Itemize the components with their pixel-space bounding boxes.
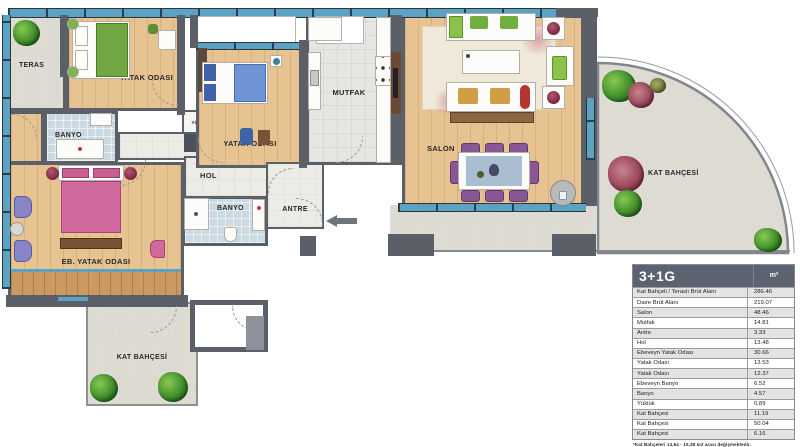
table-row: Daire Brüt Alanı219.07	[633, 297, 794, 307]
plant-icon	[158, 372, 188, 402]
area-table-header: 3+1G m²	[633, 265, 794, 287]
bed-1-blanket	[96, 23, 128, 77]
area-table-box: 3+1G m² Kat Bahçeli / Teraslı Brüt Alanı…	[632, 264, 795, 440]
window-bedroom2	[196, 42, 304, 50]
room-label: HOL	[200, 171, 217, 180]
plant-icon	[754, 228, 782, 252]
row-label: Kat Bahçeli / Teraslı Brüt Alanı	[633, 288, 747, 297]
row-label: Mutfak	[633, 318, 747, 327]
plant-icon	[614, 190, 642, 217]
row-label: Hol	[633, 339, 747, 348]
table-footnote: *Kat Bahçeleri 14,64 - 16,38 m2 arası de…	[632, 440, 795, 447]
armchair	[14, 240, 32, 262]
toilet	[224, 227, 237, 242]
row-value: 0.89	[747, 400, 794, 409]
table-row: Salon48.46	[633, 307, 794, 317]
row-value: 219.07	[747, 298, 794, 307]
decor-bowl	[547, 91, 560, 104]
stove	[375, 56, 391, 86]
window-band-left	[2, 15, 11, 289]
entry-arrow-icon	[326, 215, 357, 227]
row-value: 11.19	[747, 410, 794, 419]
plant-icon	[608, 156, 644, 192]
void-shaft-1	[196, 16, 296, 43]
window-salon-right	[586, 98, 595, 160]
table-row: Ebeveyn Banyo6.52	[633, 378, 794, 388]
row-label: Ebeveyn Yatak Odası	[633, 349, 747, 358]
row-label: Yüklük	[633, 400, 747, 409]
floor-plan: TERAS YATAK ODASI BANYO EB. YATAK ODASI …	[0, 0, 800, 447]
table-row: Ebeveyn Yatak Odası30.66	[633, 348, 794, 358]
wall-block-a	[300, 236, 316, 256]
row-label: Salon	[633, 308, 747, 317]
tv-icon	[393, 68, 398, 98]
table-title: 3+1G	[633, 265, 753, 287]
row-label: Antre	[633, 329, 747, 338]
master-balcony-strip	[11, 272, 181, 295]
console	[450, 112, 534, 123]
room-label: KAT BAHÇESİ	[648, 170, 699, 177]
shower-drain	[194, 212, 198, 216]
decor-bowl	[547, 22, 560, 35]
row-label: Ebeveyn Banyo	[633, 379, 747, 388]
table-row: Kat Bahçesi11.19	[633, 409, 794, 419]
dining-chair	[485, 190, 504, 202]
bed-2-pillow	[204, 64, 216, 81]
row-value: 48.46	[747, 308, 794, 317]
dining-chair	[509, 190, 528, 202]
armchair	[14, 196, 32, 218]
row-value: 14.81	[747, 318, 794, 327]
dresser	[60, 238, 122, 249]
table-row: Mutfak14.81	[633, 317, 794, 327]
nightstand	[46, 167, 59, 180]
row-label: Daire Brüt Alanı	[633, 298, 747, 307]
wall-void-left	[190, 15, 198, 48]
sofa-pillow-gold	[458, 88, 478, 104]
wall-bedroom2-kitchen	[299, 40, 307, 168]
table-row: Kat Bahçesi6.16	[633, 429, 794, 439]
wall-block-c	[552, 234, 596, 256]
kitchen-cabinet	[308, 17, 342, 41]
terrace-railing	[430, 250, 790, 252]
table-row: Kat Bahçeli / Teraslı Brüt Alanı286.46	[633, 287, 794, 297]
bed-2-blanket	[234, 64, 266, 102]
sofa-pillow-green	[470, 16, 488, 29]
row-value: 12.37	[747, 369, 794, 378]
wall-block-b	[388, 234, 434, 256]
sofa-throw	[449, 16, 463, 38]
row-value: 50.04	[747, 420, 794, 429]
plant-icon	[90, 374, 118, 402]
nightstand-decor	[273, 58, 280, 65]
master-pillow	[93, 168, 120, 178]
row-value: 4.57	[747, 389, 794, 398]
bathtub-faucet	[78, 147, 82, 151]
window-master-bottom	[58, 297, 88, 301]
table-row: Hol13.48	[633, 338, 794, 348]
side-table	[10, 222, 24, 236]
armchair-cushion	[552, 56, 567, 80]
room-label: KAT BAHÇESİ	[88, 354, 196, 361]
sink	[90, 113, 112, 126]
table-decor-small	[477, 171, 484, 178]
dresser-small	[258, 130, 270, 145]
row-value: 13.53	[747, 359, 794, 368]
table-row: Kat Bahçesi50.04	[633, 419, 794, 429]
coffee-table-decor	[466, 54, 470, 58]
table-row: Yüklük0.89	[633, 399, 794, 409]
wall-bedroom1-right	[177, 15, 185, 115]
arrow-shaft	[337, 218, 357, 224]
bath-vanity	[252, 199, 265, 231]
row-value: 30.66	[747, 349, 794, 358]
room-label: TERAS	[19, 62, 44, 69]
nightstand-plant	[67, 18, 79, 30]
master-window-line	[11, 269, 181, 272]
kitchen-sink	[310, 70, 319, 86]
room-label: BANYO	[217, 205, 244, 212]
bed-1-pillow	[75, 26, 88, 46]
sofa-pillow-green	[500, 16, 518, 29]
table-decor	[489, 164, 499, 176]
row-value: 3.33	[747, 329, 794, 338]
table-unit: m²	[753, 265, 794, 287]
sofa-pillow-gold	[490, 88, 510, 104]
plant-icon	[650, 78, 666, 93]
kitchen-counter-right	[376, 17, 391, 163]
room-label: BANYO	[55, 132, 82, 139]
dining-chair	[461, 190, 480, 202]
desk	[158, 30, 176, 50]
master-bed	[61, 181, 121, 233]
nightstand-plant	[67, 66, 79, 78]
master-pillow	[62, 168, 89, 178]
table-row: Yatak Odası12.37	[633, 368, 794, 378]
plant-icon	[13, 20, 40, 46]
row-value: 6.52	[747, 379, 794, 388]
area-table: 3+1G m² Kat Bahçeli / Teraslı Brüt Alanı…	[632, 264, 795, 447]
sofa-pillow-red	[520, 85, 530, 109]
arrow-head	[326, 215, 337, 227]
row-label: Kat Bahçesi	[633, 410, 747, 419]
row-label: Yatak Odası	[633, 369, 747, 378]
row-label: Kat Bahçesi	[633, 430, 747, 439]
row-value: 286.46	[747, 288, 794, 297]
chair-blue	[240, 128, 253, 145]
row-label: Yatak Odası	[633, 359, 747, 368]
row-value: 13.48	[747, 339, 794, 348]
table-row: Antre3.33	[633, 328, 794, 338]
table-row: Banyo4.57	[633, 388, 794, 398]
desk-chair	[148, 24, 158, 34]
room-label: SALON	[427, 144, 455, 153]
row-label: Kat Bahçesi	[633, 420, 747, 429]
row-label: Banyo	[633, 389, 747, 398]
round-table-decor	[559, 191, 567, 200]
row-value: 6.16	[747, 430, 794, 439]
table-row: Yatak Odası13.53	[633, 358, 794, 368]
bed-2-pillow	[204, 84, 216, 101]
vanity-faucet	[257, 206, 261, 210]
coffee-table	[462, 50, 520, 74]
room-label: EB. YATAK ODASI	[11, 257, 181, 266]
vanity-chair	[150, 240, 165, 258]
